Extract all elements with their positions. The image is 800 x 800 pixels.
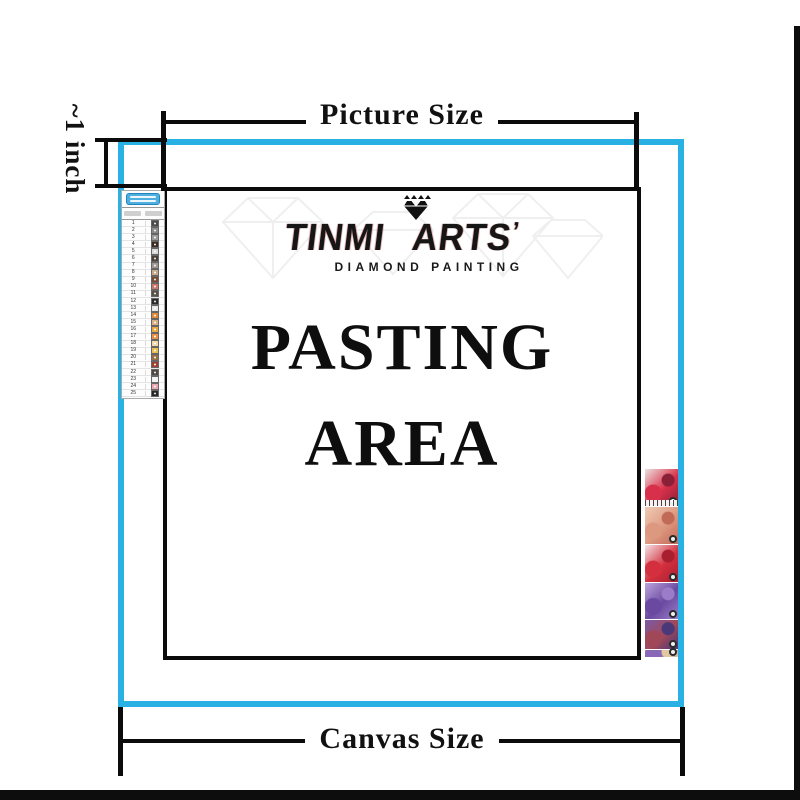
pasting-line2: AREA — [163, 396, 641, 492]
logo: TINMI ARTS’ DIAMOND PAINTING — [163, 192, 641, 284]
chart-row: 8 — [122, 270, 164, 277]
chart-row-swatch — [146, 355, 164, 360]
chart-row: 10 — [122, 284, 164, 291]
chart-row-swatch — [146, 341, 164, 346]
chart-row-number: 25 — [122, 391, 146, 396]
swatch-color — [152, 377, 158, 382]
swatch-color — [152, 284, 158, 289]
swatch-color — [152, 348, 158, 353]
brand-subtitle: DIAMOND PAINTING — [190, 260, 668, 274]
chart-row-swatch — [146, 377, 164, 382]
inch-bracket-vertical-line — [104, 138, 108, 188]
chart-row-number: 5 — [122, 249, 146, 254]
kit-thumbnail-tan-sticks-kit — [645, 650, 678, 658]
chart-row-swatch — [146, 270, 164, 275]
swatch-color — [152, 277, 158, 282]
swatch-color — [152, 341, 158, 346]
chart-row-number: 1 — [122, 221, 146, 226]
chart-row: 23 — [122, 376, 164, 383]
kit-thumbnail-red-shirt-kit — [645, 545, 678, 583]
thumbnail-number-badge — [669, 610, 677, 618]
chart-row: 25 — [122, 390, 164, 397]
kit-thumbnail-purple-feather-kit — [645, 583, 678, 620]
thumbnail-number-badge — [669, 648, 677, 656]
chart-row: 19 — [122, 348, 164, 355]
swatch-color — [152, 320, 158, 325]
chart-col-number — [124, 211, 141, 216]
chart-row-swatch — [146, 327, 164, 332]
color-symbol-chart: 1234567891011121314151617181920212223242… — [122, 191, 164, 398]
pasting-line1: PASTING — [163, 300, 641, 396]
chart-row-number: 22 — [122, 370, 146, 375]
chart-row-number: 2 — [122, 228, 146, 233]
chart-row-number: 21 — [122, 362, 146, 367]
chart-row: 12 — [122, 298, 164, 305]
chart-row: 24 — [122, 383, 164, 390]
chart-row-swatch — [146, 348, 164, 353]
chart-row-swatch — [146, 263, 164, 268]
canvas-size-left-tick — [118, 707, 123, 776]
chart-rows: 1234567891011121314151617181920212223242… — [122, 220, 164, 398]
chart-row-number: 8 — [122, 270, 146, 275]
chart-header-text-line — [130, 196, 156, 198]
swatch-color — [152, 391, 158, 396]
kit-thumbnail-purple-red-kit — [645, 620, 678, 650]
chart-row: 1 — [122, 220, 164, 227]
chart-row: 9 — [122, 277, 164, 284]
canvas-size-label-text: Canvas Size — [305, 722, 498, 755]
chart-row-number: 17 — [122, 334, 146, 339]
swatch-color — [152, 355, 158, 360]
photo-edge-bottom — [0, 790, 800, 800]
swatch-color — [152, 270, 158, 275]
thumbnail-number-badge — [669, 535, 677, 543]
chart-row-swatch — [146, 299, 164, 304]
chart-row-swatch — [146, 277, 164, 282]
chart-row-number: 14 — [122, 313, 146, 318]
chart-row-swatch — [146, 291, 164, 296]
chart-row-swatch — [146, 334, 164, 339]
swatch-color — [152, 235, 158, 240]
swatch-color — [152, 256, 158, 261]
swatch-color — [152, 327, 158, 332]
kit-thumbnail-red-floral-kit — [645, 469, 678, 507]
swatch-color — [152, 334, 158, 339]
chart-row-number: 13 — [122, 306, 146, 311]
chart-row: 21 — [122, 362, 164, 369]
chart-row: 22 — [122, 369, 164, 376]
chart-row-number: 4 — [122, 242, 146, 247]
chart-column-headers — [122, 207, 164, 220]
chart-row-number: 3 — [122, 235, 146, 240]
swatch-color — [152, 370, 158, 375]
swatch-color — [152, 384, 158, 389]
chart-row: 20 — [122, 355, 164, 362]
brand-name-text: TINMI ARTS — [282, 217, 513, 259]
chart-row-number: 9 — [122, 277, 146, 282]
chart-row-swatch — [146, 391, 164, 396]
thumbnail-number-badge — [669, 497, 677, 505]
swatch-color — [152, 299, 158, 304]
chart-row-number: 18 — [122, 341, 146, 346]
kit-thumbnails-strip — [645, 469, 678, 658]
thumbnail-number-badge — [669, 640, 677, 648]
photo-edge-right — [794, 26, 800, 800]
chart-row-number: 12 — [122, 299, 146, 304]
chart-row-number: 16 — [122, 327, 146, 332]
chart-row-swatch — [146, 306, 164, 311]
swatch-color — [152, 291, 158, 296]
swatch-color — [152, 228, 158, 233]
chart-row: 17 — [122, 334, 164, 341]
chart-row-number: 10 — [122, 284, 146, 289]
chart-row-swatch — [146, 284, 164, 289]
chart-row: 13 — [122, 305, 164, 312]
chart-row-swatch — [146, 228, 164, 233]
chart-header-badge — [126, 193, 160, 205]
chart-row-number: 24 — [122, 384, 146, 389]
kit-thumbnail-peach-feather-kit — [645, 507, 678, 545]
canvas-size-label: Canvas Size — [163, 722, 641, 756]
chart-row: 5 — [122, 248, 164, 255]
chart-row-swatch — [146, 221, 164, 226]
chart-row-swatch — [146, 242, 164, 247]
chart-row-number: 19 — [122, 348, 146, 353]
swatch-color — [152, 221, 158, 226]
chart-row-swatch — [146, 320, 164, 325]
chart-row: 3 — [122, 234, 164, 241]
chart-row: 11 — [122, 291, 164, 298]
chart-row: 14 — [122, 312, 164, 319]
swatch-color — [152, 263, 158, 268]
chart-header-text-line — [130, 200, 156, 202]
pasting-area-label: PASTING AREA — [163, 300, 641, 492]
picture-size-label-text: Picture Size — [306, 98, 498, 131]
chart-row-number: 7 — [122, 263, 146, 268]
chart-row-number: 11 — [122, 291, 146, 296]
thumbnail-number-badge — [669, 573, 677, 581]
swatch-color — [152, 313, 158, 318]
chart-row-number: 23 — [122, 377, 146, 382]
chart-row: 2 — [122, 227, 164, 234]
brand-name: TINMI ARTS’ — [179, 216, 624, 260]
product-size-diagram: Picture Size ~1 inch TINMI ARTS’ DIAMOND… — [0, 0, 800, 800]
chart-row-swatch — [146, 235, 164, 240]
swatch-color — [152, 306, 158, 311]
chart-row-number: 6 — [122, 256, 146, 261]
chart-row-swatch — [146, 249, 164, 254]
chart-row-swatch — [146, 370, 164, 375]
swatch-color — [152, 242, 158, 247]
chart-row-swatch — [146, 313, 164, 318]
chart-row: 15 — [122, 319, 164, 326]
chart-row-number: 15 — [122, 320, 146, 325]
chart-row: 6 — [122, 255, 164, 262]
chart-row-swatch — [146, 256, 164, 261]
chart-row: 16 — [122, 326, 164, 333]
swatch-color — [152, 249, 158, 254]
picture-size-label: Picture Size — [163, 98, 641, 132]
chart-col-color — [145, 211, 162, 216]
inch-label: ~1 inch — [56, 88, 90, 210]
chart-row: 4 — [122, 241, 164, 248]
chart-row-number: 20 — [122, 355, 146, 360]
chart-row-swatch — [146, 362, 164, 367]
chart-row: 18 — [122, 341, 164, 348]
canvas-size-right-tick — [680, 707, 685, 776]
chart-row-swatch — [146, 384, 164, 389]
chart-row: 7 — [122, 263, 164, 270]
swatch-color — [152, 362, 158, 367]
